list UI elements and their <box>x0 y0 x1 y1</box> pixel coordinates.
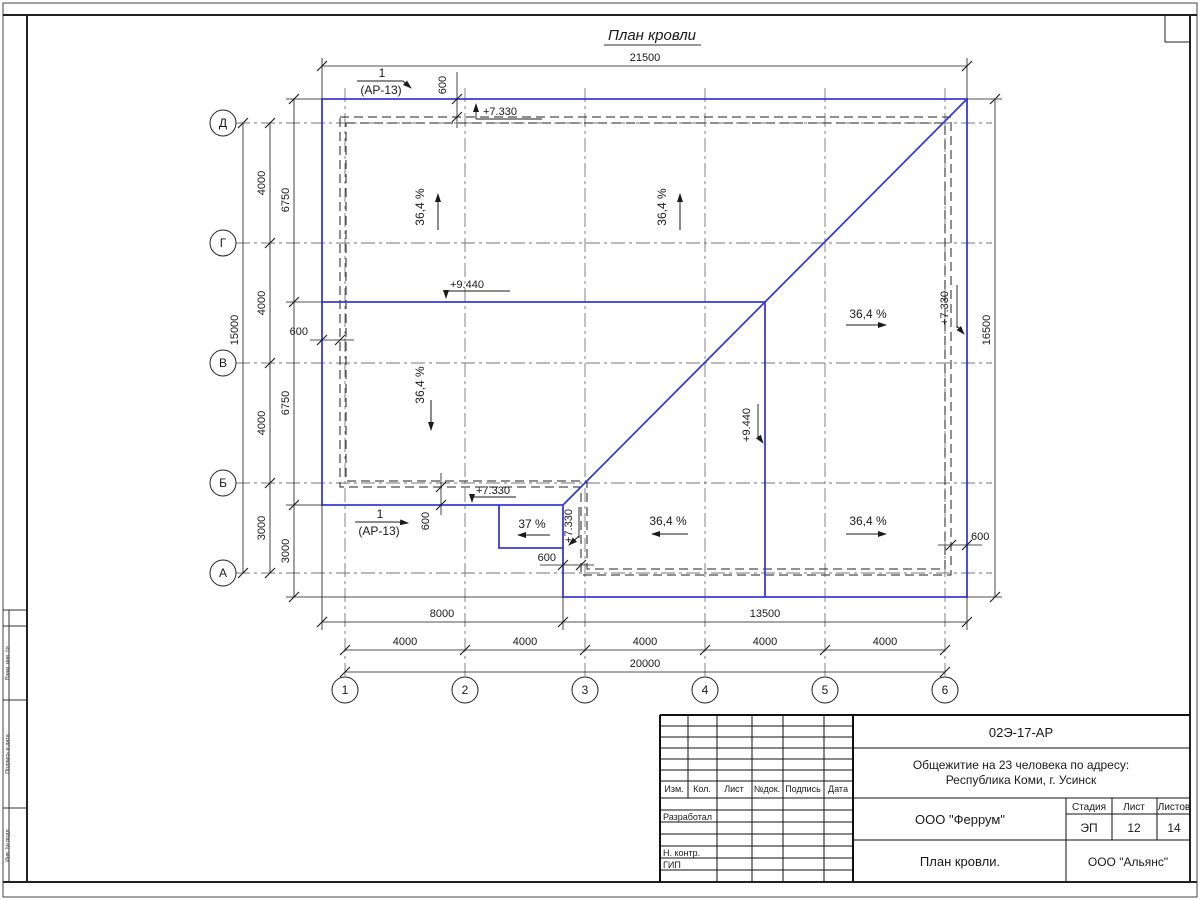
axis-col-label: 4 <box>702 683 709 697</box>
elevation-label: +7.330 <box>483 106 517 118</box>
elevation-label: +7.330 <box>476 485 510 497</box>
extension-lines <box>286 58 1002 630</box>
dim-bottom-col: 4000 <box>633 636 657 648</box>
dim-bottom-col: 4000 <box>513 636 537 648</box>
slope-label: 36,4 % <box>655 188 669 226</box>
side-stamp-label: Взам. инв. № <box>5 646 11 680</box>
axis-col-label: 1 <box>342 683 349 697</box>
tb-role: ГИП <box>663 860 681 870</box>
axis-col-label: 5 <box>822 683 829 697</box>
sheet-title: План кровли <box>608 27 697 44</box>
tb-stage-label: Стадия <box>1072 802 1106 813</box>
slope-label: 36,4 % <box>413 188 427 226</box>
axis-grid <box>236 88 992 676</box>
building-outline-dashed <box>340 117 951 575</box>
tb-stage-value: ЭП <box>1080 821 1097 835</box>
dim-bottom-span: 13500 <box>750 608 781 620</box>
dim-overhang-bottom: 600 <box>538 552 556 564</box>
corner-box <box>1165 15 1190 42</box>
dimension-lines <box>243 58 1002 672</box>
slope-label: 36,4 % <box>849 514 887 528</box>
elevation-arrow <box>957 326 964 334</box>
title-block: Изм. Кол. Лист №док. Подпись Дата Разраб… <box>660 715 1190 882</box>
detail-ref-sheet: (АР-13) <box>358 524 399 538</box>
dimension-ticks <box>238 61 1000 677</box>
detail-ref-sheet: (АР-13) <box>360 83 401 97</box>
dim-overhang-notch: 600 <box>420 512 432 530</box>
dimension-text: 21500 15000 4000 4000 4000 3000 6750 675… <box>229 52 993 670</box>
dim-overhang-left: 600 <box>290 326 308 338</box>
tb-col-header: №док. <box>754 784 780 794</box>
elevation-label: +7.330 <box>563 509 575 543</box>
axis-row-label: Д <box>219 116 227 130</box>
tb-doc-number: 02Э-17-АР <box>989 725 1053 740</box>
dim-left-seg: 4000 <box>256 411 268 435</box>
tb-sheets-value: 14 <box>1167 821 1181 835</box>
tb-col-header: Подпись <box>785 784 821 794</box>
dim-left-seg: 4000 <box>256 291 268 315</box>
axis-row-label: Г <box>220 236 227 250</box>
side-stamp: Взам. инв. № Подпись и дата Инв. № подл. <box>3 610 27 882</box>
dim-left-inner: 3000 <box>280 539 292 563</box>
dim-bottom-total: 20000 <box>630 658 661 670</box>
axis-col-label: 3 <box>582 683 589 697</box>
side-stamp-label: Инв. № подл. <box>5 827 11 862</box>
elevation-arrow <box>758 436 763 443</box>
dim-bottom-col: 4000 <box>873 636 897 648</box>
dim-overhang-top: 600 <box>437 76 449 94</box>
dim-left-total: 15000 <box>229 315 241 346</box>
tb-project-line1: Общежитие на 23 человека по адресу: <box>913 758 1129 772</box>
drawing-sheet: Взам. инв. № Подпись и дата Инв. № подл.… <box>0 0 1200 900</box>
elevation-label: +9.440 <box>450 279 484 291</box>
tb-role: Н. контр. <box>663 848 700 858</box>
tb-project-line2: Республика Коми, г. Усинск <box>946 773 1097 787</box>
tb-contractor: ООО "Альянс" <box>1088 855 1168 869</box>
tb-col-header: Лист <box>724 784 744 794</box>
dim-left-inner: 6750 <box>280 391 292 415</box>
axis-row-label: Б <box>219 476 227 490</box>
dim-top-total: 21500 <box>630 52 661 64</box>
dim-right-total: 16500 <box>981 315 993 346</box>
slope-label: 36,4 % <box>849 307 887 321</box>
axis-row-label: В <box>219 356 227 370</box>
detail-ref-leader <box>355 522 408 523</box>
side-stamp-label: Подпись и дата <box>5 733 11 773</box>
dim-left-seg: 4000 <box>256 171 268 195</box>
dim-overhang-right: 600 <box>971 531 989 543</box>
axis-row-label: А <box>219 566 227 580</box>
elevation-label: +9.440 <box>741 408 753 442</box>
detail-ref-number: 1 <box>377 507 384 521</box>
tb-sheet-value: 12 <box>1127 821 1141 835</box>
tb-col-header: Дата <box>828 784 848 794</box>
axis-col-label: 2 <box>462 683 469 697</box>
tb-organization: ООО "Феррум" <box>915 812 1005 827</box>
axis-col-label: 6 <box>942 683 949 697</box>
tb-sheets-label: Листов <box>1158 802 1191 813</box>
slope-label: 36,4 % <box>413 366 427 404</box>
detail-ref-number: 1 <box>379 66 386 80</box>
dim-left-seg: 3000 <box>256 516 268 540</box>
dim-left-inner: 6750 <box>280 188 292 212</box>
tb-role: Разработал <box>663 812 712 822</box>
elevation-label: +7.330 <box>939 291 951 325</box>
tb-col-header: Изм. <box>664 784 683 794</box>
dim-bottom-span: 8000 <box>430 608 454 620</box>
tb-sheet-label: Лист <box>1123 802 1145 813</box>
slope-label-small: 37 % <box>518 517 546 531</box>
dim-bottom-col: 4000 <box>393 636 417 648</box>
tb-drawing-title: План кровли. <box>920 854 1000 869</box>
dim-bottom-col: 4000 <box>753 636 777 648</box>
roof-plan-svg: Взам. инв. № Подпись и дата Инв. № подл.… <box>0 0 1200 900</box>
slope-label: 36,4 % <box>649 514 687 528</box>
tb-col-header: Кол. <box>693 784 711 794</box>
